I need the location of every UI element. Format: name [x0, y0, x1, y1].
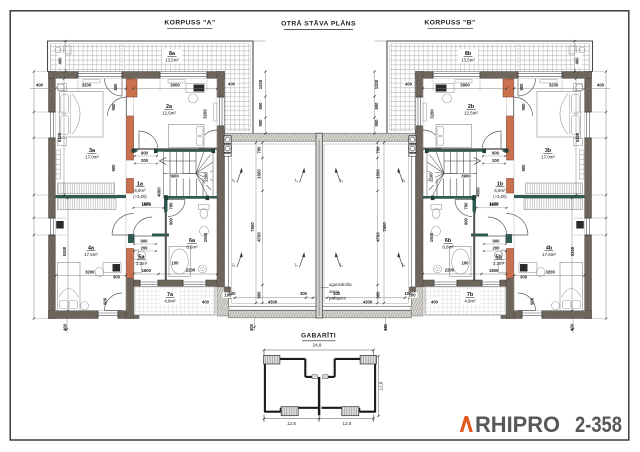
svg-text:2°: 2° — [231, 263, 236, 267]
svg-text:1600: 1600 — [489, 201, 499, 206]
svg-text:3200: 3200 — [203, 109, 208, 119]
svg-text:2°: 2° — [339, 263, 344, 267]
svg-text:2°: 2° — [294, 263, 299, 267]
svg-text:400: 400 — [228, 82, 236, 87]
svg-text:900: 900 — [141, 151, 149, 156]
svg-text:900: 900 — [492, 151, 500, 156]
svg-text:900: 900 — [102, 297, 107, 305]
svg-text:900: 900 — [257, 291, 262, 299]
svg-text:OTRĀ STĀVA PLĀNS: OTRĀ STĀVA PLĀNS — [281, 19, 356, 27]
svg-text:8,6m²: 8,6m² — [186, 244, 198, 249]
svg-text:1200: 1200 — [374, 79, 379, 89]
svg-text:3900: 3900 — [461, 173, 471, 178]
svg-text:5300: 5300 — [570, 246, 575, 256]
svg-text:400: 400 — [63, 323, 68, 331]
svg-text:2-358: 2-358 — [575, 412, 622, 437]
svg-text:100: 100 — [228, 291, 236, 296]
svg-text:400: 400 — [202, 299, 210, 304]
svg-text:1500: 1500 — [203, 232, 208, 242]
svg-text:3,2m²: 3,2m² — [493, 261, 505, 266]
svg-text:900: 900 — [376, 291, 381, 299]
svg-text:parapets: parapets — [329, 295, 346, 300]
svg-text:1500: 1500 — [257, 169, 262, 179]
svg-text:5,9m²: 5,9m² — [134, 188, 146, 193]
svg-text:900: 900 — [521, 103, 526, 111]
svg-text:ugunsdroša: ugunsdroša — [329, 282, 352, 287]
svg-text:3,2m²: 3,2m² — [136, 261, 148, 266]
svg-text:900: 900 — [169, 217, 174, 225]
svg-text:(+3,00): (+3,00) — [133, 194, 147, 199]
svg-text:400: 400 — [383, 323, 388, 331]
svg-text:5,9m²: 5,9m² — [494, 188, 506, 193]
svg-text:300: 300 — [300, 291, 308, 296]
svg-text:100: 100 — [171, 261, 179, 266]
svg-text:3900: 3900 — [460, 83, 470, 88]
svg-text:1500: 1500 — [376, 169, 381, 179]
svg-text:300: 300 — [113, 275, 121, 280]
svg-text:GABARĪTI: GABARĪTI — [301, 332, 336, 340]
svg-text:1600: 1600 — [142, 268, 152, 273]
svg-text:1200: 1200 — [258, 79, 263, 89]
svg-text:700: 700 — [464, 202, 469, 210]
svg-text:3200: 3200 — [85, 270, 95, 275]
svg-text:24,9: 24,9 — [313, 343, 322, 348]
svg-text:400: 400 — [597, 83, 605, 88]
svg-text:2200: 2200 — [186, 268, 196, 273]
svg-text:900: 900 — [258, 119, 263, 127]
svg-text:1600: 1600 — [141, 201, 151, 206]
svg-text:5300: 5300 — [575, 132, 580, 142]
svg-text:4700: 4700 — [376, 232, 381, 242]
svg-text:5300: 5300 — [62, 246, 67, 256]
svg-text:12,5m²: 12,5m² — [162, 110, 176, 115]
svg-text:(+3,00): (+3,00) — [493, 194, 507, 199]
svg-text:700: 700 — [257, 146, 262, 154]
svg-text:100: 100 — [461, 261, 469, 266]
svg-text:100: 100 — [404, 291, 412, 296]
svg-text:12,6: 12,6 — [343, 421, 352, 426]
svg-text:2200: 2200 — [445, 268, 455, 273]
svg-text:2°: 2° — [339, 178, 344, 182]
svg-text:400: 400 — [405, 82, 413, 87]
svg-text:1600: 1600 — [489, 268, 499, 273]
svg-text:12,5m²: 12,5m² — [464, 110, 478, 115]
svg-text:3200: 3200 — [549, 83, 559, 88]
svg-text:800: 800 — [258, 102, 263, 110]
svg-text:2100: 2100 — [429, 172, 434, 182]
svg-text:3200: 3200 — [545, 270, 555, 275]
svg-text:2100: 2100 — [204, 172, 209, 182]
svg-text:900: 900 — [374, 119, 379, 127]
svg-text:1500: 1500 — [429, 232, 434, 242]
svg-text:13,5m²: 13,5m² — [461, 57, 475, 62]
svg-text:4000: 4000 — [476, 187, 481, 197]
svg-text:200: 200 — [140, 246, 148, 251]
svg-text:siena: siena — [329, 289, 340, 294]
svg-text:900: 900 — [521, 164, 526, 172]
svg-text:900: 900 — [111, 164, 116, 172]
svg-text:2°: 2° — [401, 178, 406, 182]
svg-text:800: 800 — [374, 102, 379, 110]
svg-text:KORPUSS "B": KORPUSS "B" — [424, 20, 475, 27]
svg-text:17,6m²: 17,6m² — [84, 252, 98, 257]
svg-text:300: 300 — [520, 275, 528, 280]
svg-text:400: 400 — [58, 57, 63, 65]
svg-text:700: 700 — [169, 202, 174, 210]
svg-text:17,0m²: 17,0m² — [85, 154, 99, 159]
svg-text:12,6: 12,6 — [287, 421, 296, 426]
svg-text:900: 900 — [492, 239, 500, 244]
svg-text:2°: 2° — [231, 178, 236, 182]
svg-text:900: 900 — [140, 239, 148, 244]
svg-text:4000: 4000 — [156, 187, 161, 197]
svg-text:13,5m²: 13,5m² — [165, 57, 179, 62]
svg-text:4,9m²: 4,9m² — [464, 298, 476, 303]
svg-text:800: 800 — [519, 83, 524, 91]
svg-text:7800: 7800 — [250, 222, 255, 232]
svg-text:200: 200 — [141, 158, 149, 163]
svg-text:400: 400 — [570, 323, 575, 331]
svg-text:400: 400 — [575, 57, 580, 65]
svg-text:4,9m²: 4,9m² — [164, 298, 176, 303]
svg-text:17,6m²: 17,6m² — [542, 252, 556, 257]
svg-text:2°: 2° — [401, 263, 406, 267]
svg-text:7800: 7800 — [382, 222, 387, 232]
svg-text:4300: 4300 — [363, 300, 373, 305]
svg-text:3200: 3200 — [82, 83, 92, 88]
svg-text:800: 800 — [113, 83, 118, 91]
svg-text:RHIPRO: RHIPRO — [475, 412, 560, 437]
svg-text:2°: 2° — [294, 178, 299, 182]
svg-text:200: 200 — [492, 158, 500, 163]
svg-text:200: 200 — [492, 246, 500, 251]
svg-text:700: 700 — [376, 146, 381, 154]
svg-text:900: 900 — [464, 217, 469, 225]
svg-text:12,8: 12,8 — [379, 381, 384, 390]
svg-text:900: 900 — [111, 103, 116, 111]
svg-text:4300: 4300 — [268, 300, 278, 305]
svg-text:17,0m²: 17,0m² — [541, 154, 555, 159]
svg-text:400: 400 — [36, 83, 44, 88]
svg-text:3200: 3200 — [430, 109, 435, 119]
svg-text:400: 400 — [431, 299, 439, 304]
svg-text:3900: 3900 — [169, 173, 179, 178]
svg-text:400: 400 — [249, 323, 254, 331]
svg-text:5300: 5300 — [57, 132, 62, 142]
svg-text:KORPUSS "A": KORPUSS "A" — [164, 20, 215, 27]
svg-text:4700: 4700 — [257, 232, 262, 242]
svg-text:3900: 3900 — [170, 83, 180, 88]
svg-text:900: 900 — [530, 297, 535, 305]
svg-text:8,6m²: 8,6m² — [442, 244, 454, 249]
